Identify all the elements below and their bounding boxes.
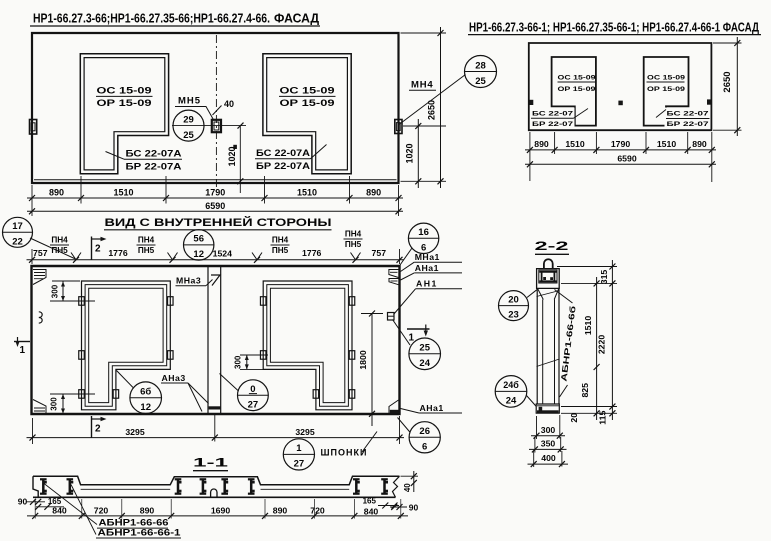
- svg-text:28: 28: [475, 60, 486, 71]
- svg-text:1790: 1790: [205, 187, 225, 197]
- svg-text:ПН5: ПН5: [138, 246, 155, 255]
- svg-text:20: 20: [508, 294, 519, 305]
- svg-text:1524: 1524: [213, 249, 232, 259]
- svg-text:ОР 15-09: ОР 15-09: [647, 86, 685, 93]
- svg-text:ШПОНКИ: ШПОНКИ: [321, 447, 368, 457]
- svg-text:56: 56: [193, 234, 204, 245]
- svg-text:1690: 1690: [211, 505, 230, 515]
- svg-text:720: 720: [310, 505, 325, 515]
- svg-text:757: 757: [33, 248, 48, 258]
- svg-text:90: 90: [409, 502, 419, 512]
- svg-text:1790: 1790: [611, 139, 630, 149]
- svg-text:890: 890: [692, 139, 707, 149]
- svg-text:БС 22-07: БС 22-07: [532, 111, 573, 118]
- svg-text:ОР 15-09: ОР 15-09: [97, 98, 152, 109]
- svg-text:6: 6: [422, 441, 427, 452]
- svg-text:3295: 3295: [295, 427, 314, 437]
- svg-text:300: 300: [234, 355, 243, 369]
- svg-text:2: 2: [95, 424, 101, 435]
- svg-text:25: 25: [183, 130, 194, 141]
- svg-text:22: 22: [12, 236, 23, 247]
- svg-text:НР1-66.27.3-66;НР1-66.27.35-66: НР1-66.27.3-66;НР1-66.27.35-66;НР1-66.27…: [33, 11, 270, 26]
- svg-text:1510: 1510: [113, 187, 133, 197]
- svg-text:ПН5: ПН5: [51, 246, 68, 255]
- svg-text:3295: 3295: [125, 427, 144, 437]
- svg-text:ОС 15-09: ОС 15-09: [280, 86, 335, 97]
- svg-text:24: 24: [506, 395, 517, 406]
- svg-text:1776: 1776: [108, 248, 127, 258]
- svg-text:1510: 1510: [657, 139, 676, 149]
- svg-text:825: 825: [580, 383, 590, 398]
- svg-text:23: 23: [508, 310, 519, 321]
- svg-text:АНа1: АНа1: [420, 403, 444, 413]
- svg-text:АБНР1-66-66-1: АБНР1-66-66-1: [98, 528, 181, 538]
- svg-text:115: 115: [597, 411, 607, 425]
- svg-text:6590: 6590: [205, 201, 225, 211]
- svg-text:1800: 1800: [358, 350, 368, 369]
- svg-text:2220: 2220: [596, 335, 606, 354]
- svg-text:840: 840: [364, 506, 379, 516]
- svg-text:300: 300: [50, 397, 59, 411]
- svg-text:6590: 6590: [617, 154, 636, 164]
- svg-text:40: 40: [403, 483, 412, 492]
- svg-text:890: 890: [273, 505, 288, 515]
- svg-text:400: 400: [541, 453, 556, 463]
- svg-text:1510: 1510: [583, 316, 593, 335]
- svg-text:165: 165: [363, 497, 377, 506]
- svg-text:757: 757: [372, 248, 387, 258]
- svg-text:НР1-66.27.3-66-1; НР1-66.27.35: НР1-66.27.3-66-1; НР1-66.27.35-66-1; НР1…: [469, 21, 759, 35]
- svg-text:ОС 15-09: ОС 15-09: [97, 86, 152, 97]
- svg-text:890: 890: [534, 139, 549, 149]
- svg-text:300: 300: [541, 425, 556, 435]
- svg-text:890: 890: [366, 187, 381, 197]
- svg-text:12: 12: [193, 249, 204, 260]
- svg-text:ОС 15-09: ОС 15-09: [647, 74, 685, 81]
- svg-text:26: 26: [419, 426, 430, 437]
- svg-text:20: 20: [569, 413, 579, 423]
- svg-text:БС 22-07А: БС 22-07А: [126, 149, 182, 160]
- svg-text:720: 720: [94, 505, 109, 515]
- svg-text:АН1: АН1: [416, 279, 438, 289]
- svg-text:ФАСАД: ФАСАД: [274, 11, 320, 26]
- svg-text:350: 350: [541, 438, 556, 448]
- svg-text:16: 16: [418, 227, 429, 238]
- svg-text:ОС 15-09: ОС 15-09: [558, 74, 596, 81]
- svg-text:2: 2: [95, 244, 101, 255]
- svg-text:ПН4: ПН4: [51, 236, 68, 245]
- svg-text:1: 1: [296, 443, 302, 454]
- svg-text:25: 25: [419, 343, 430, 354]
- svg-text:ПН4: ПН4: [272, 236, 289, 245]
- svg-text:АБНР1-66-66: АБНР1-66-66: [99, 518, 169, 528]
- svg-text:12: 12: [140, 402, 151, 413]
- svg-text:БР 22-07: БР 22-07: [667, 121, 709, 128]
- svg-text:890: 890: [49, 187, 64, 197]
- svg-text:ПН4: ПН4: [345, 230, 362, 239]
- svg-text:1020: 1020: [227, 146, 237, 166]
- svg-text:ОР 15-09: ОР 15-09: [558, 86, 596, 93]
- svg-text:ОР 15-09: ОР 15-09: [280, 98, 335, 109]
- svg-text:17: 17: [12, 221, 23, 232]
- svg-text:27: 27: [294, 458, 305, 469]
- svg-text:40: 40: [224, 99, 234, 109]
- svg-text:840: 840: [52, 505, 67, 515]
- svg-text:29: 29: [183, 114, 194, 125]
- svg-text:ПН5: ПН5: [272, 246, 289, 255]
- svg-text:1020: 1020: [404, 143, 414, 163]
- svg-text:АНа1: АНа1: [415, 263, 439, 273]
- svg-text:25: 25: [475, 76, 486, 87]
- svg-text:890: 890: [140, 505, 155, 515]
- svg-text:АНа3: АНа3: [162, 373, 186, 383]
- svg-text:2650: 2650: [722, 71, 733, 92]
- svg-text:1: 1: [20, 345, 26, 356]
- svg-text:6б: 6б: [140, 386, 151, 397]
- svg-text:1776: 1776: [302, 248, 321, 258]
- svg-text:24: 24: [419, 358, 430, 369]
- svg-text:1510: 1510: [565, 139, 584, 149]
- svg-text:1-1: 1-1: [193, 458, 229, 470]
- svg-text:БР 22-07: БР 22-07: [532, 121, 573, 128]
- svg-text:ВИД С ВНУТРЕННЕЙ СТОРОНЫ: ВИД С ВНУТРЕННЕЙ СТОРОНЫ: [105, 216, 332, 229]
- svg-text:1510: 1510: [297, 187, 317, 197]
- svg-text:315: 315: [599, 270, 609, 285]
- svg-text:МН4: МН4: [411, 80, 433, 91]
- svg-text:ПН4: ПН4: [138, 236, 155, 245]
- svg-text:ПН5: ПН5: [345, 240, 362, 249]
- svg-text:90: 90: [18, 497, 28, 507]
- svg-text:МНа3: МНа3: [176, 275, 201, 285]
- svg-text:БР 22-07А: БР 22-07А: [256, 161, 310, 172]
- svg-text:БС 22-07А: БС 22-07А: [256, 148, 310, 159]
- svg-text:2-2: 2-2: [535, 241, 569, 253]
- svg-text:24б: 24б: [503, 380, 519, 390]
- svg-text:6: 6: [421, 242, 426, 253]
- svg-text:300: 300: [51, 284, 60, 298]
- svg-text:БС 22-07: БС 22-07: [667, 111, 709, 118]
- svg-text:27: 27: [248, 399, 259, 410]
- svg-text:МН5: МН5: [178, 96, 201, 107]
- svg-text:БР 22-07А: БР 22-07А: [126, 162, 182, 173]
